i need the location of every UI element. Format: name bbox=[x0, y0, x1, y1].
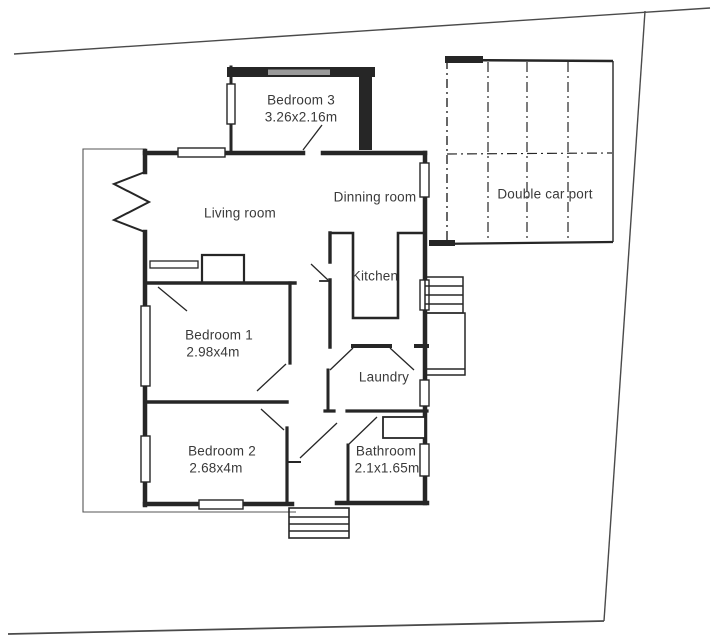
side-steps-treads bbox=[425, 286, 463, 304]
bathtub bbox=[383, 417, 425, 438]
bedroom2-left-window bbox=[141, 436, 150, 482]
side-stairs bbox=[425, 277, 465, 375]
bathroom-door bbox=[348, 417, 377, 445]
laundry-right-door bbox=[390, 348, 414, 370]
bedroom2-bottom-window bbox=[199, 500, 243, 509]
laundry-right-window bbox=[420, 380, 429, 406]
bedroom2-dims: 2.68x4m bbox=[189, 461, 242, 476]
carport bbox=[429, 60, 613, 244]
bedroom2-label: Bedroom 2 bbox=[188, 444, 256, 459]
floor-plan-page: Bedroom 3 3.26x2.16m Living room Dinning… bbox=[0, 0, 712, 640]
living-room-label: Living room bbox=[204, 206, 276, 221]
bathroom-label: Bathroom bbox=[356, 444, 416, 459]
floor-plan-drawing: Bedroom 3 3.26x2.16m Living room Dinning… bbox=[0, 0, 712, 640]
bedroom1-label: Bedroom 1 bbox=[185, 328, 253, 343]
front-steps bbox=[289, 508, 349, 538]
wardrobe bbox=[150, 261, 198, 268]
boundary-line-right bbox=[604, 11, 645, 621]
front-steps-outline bbox=[289, 508, 349, 538]
bedroom3-label: Bedroom 3 bbox=[267, 93, 335, 108]
boundary-line-top bbox=[14, 8, 710, 54]
bathroom-dims: 2.1x1.65m bbox=[355, 461, 420, 476]
bedroom1-dims: 2.98x4m bbox=[186, 345, 239, 360]
carport-grid-horizontal bbox=[447, 153, 612, 154]
living-room-bay-zigzag bbox=[114, 172, 149, 232]
bedroom3-right-wall bbox=[359, 67, 372, 150]
bedroom3-dims: 3.26x2.16m bbox=[265, 110, 338, 125]
laundry-label: Laundry bbox=[359, 370, 409, 385]
fireplace bbox=[202, 255, 244, 283]
carport-bottom-edge bbox=[429, 242, 613, 244]
carport-label: Double car port bbox=[497, 187, 592, 202]
bedroom1-left-window bbox=[141, 306, 150, 386]
top-wall-window bbox=[178, 148, 225, 157]
kitchen-door bbox=[311, 264, 328, 280]
hall-door bbox=[300, 423, 337, 458]
kitchen-label: Kitchen bbox=[352, 269, 398, 284]
carport-top-edge bbox=[446, 60, 613, 61]
bedroom3-left-window bbox=[227, 84, 235, 124]
dinning-room-label: Dinning room bbox=[334, 190, 417, 205]
carport-grid-verticals bbox=[488, 62, 568, 241]
laundry-left-door bbox=[330, 348, 353, 370]
door-swings bbox=[158, 125, 414, 458]
bedroom1-living-door bbox=[158, 287, 187, 311]
bedroom1-door bbox=[257, 364, 286, 391]
bedroom3-door bbox=[303, 125, 322, 150]
bathroom-right-window bbox=[420, 444, 429, 476]
boundary-line-bottom bbox=[8, 621, 604, 634]
house-walls bbox=[114, 67, 427, 505]
bedroom3-top-window bbox=[268, 70, 330, 76]
dinning-right-window bbox=[420, 163, 429, 197]
side-landing bbox=[425, 313, 465, 375]
front-steps-treads bbox=[289, 517, 349, 531]
bedroom2-door bbox=[261, 409, 284, 430]
